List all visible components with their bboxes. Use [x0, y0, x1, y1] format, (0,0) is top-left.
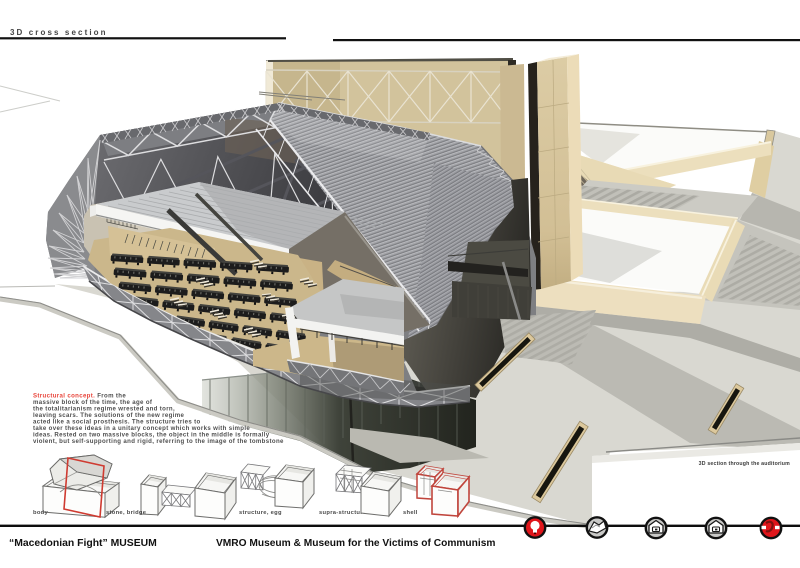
svg-text:violent, but self-supporting a: violent, but self-supporting and rigid, …: [33, 438, 284, 445]
svg-text:VMRO Museum & Museum for the V: VMRO Museum & Museum for the Victims of …: [216, 538, 495, 549]
svg-text:shell: shell: [403, 510, 418, 516]
svg-text:body: body: [33, 510, 49, 516]
svg-text:“Macedonian Fight” MUSEUM: “Macedonian Fight” MUSEUM: [9, 538, 157, 549]
svg-text:supra-structure: supra-structure: [319, 510, 367, 516]
svg-text:stone, bridge: stone, bridge: [106, 510, 147, 516]
svg-text:structure, egg: structure, egg: [239, 510, 282, 516]
svg-text:3D section through the auditor: 3D section through the auditorium: [699, 461, 791, 467]
svg-text:3D cross section: 3D cross section: [10, 28, 108, 37]
